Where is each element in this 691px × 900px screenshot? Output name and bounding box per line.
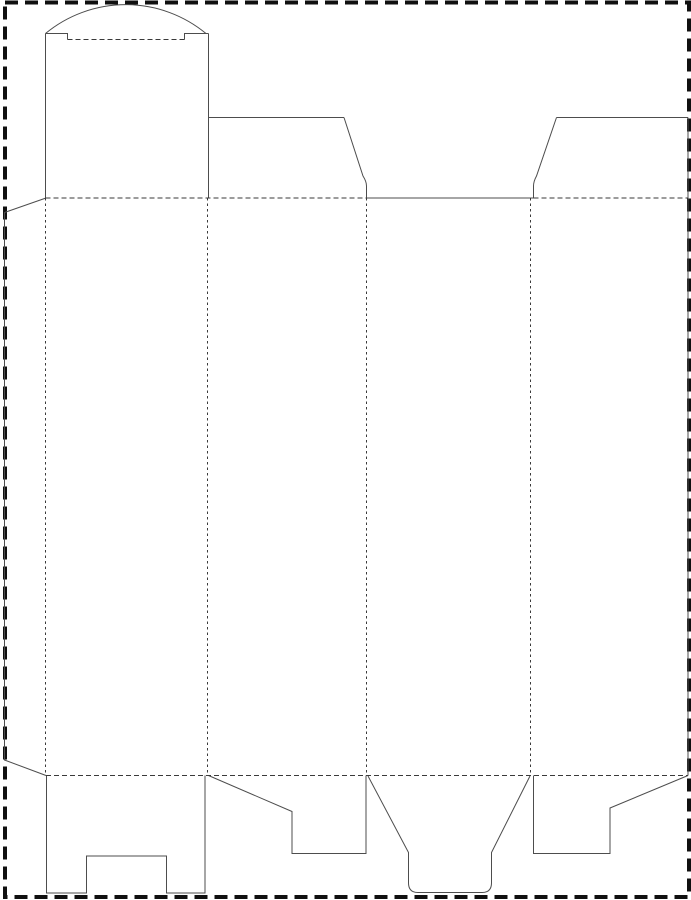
tuck-shoulder-right: [185, 34, 209, 40]
tuck-shoulder-left: [46, 34, 68, 40]
dust-flap-left-slant: [344, 118, 367, 199]
tuck-lid-arc: [46, 5, 207, 34]
box-dieline-diagram: [0, 0, 691, 900]
dust-flap-right-slant: [534, 118, 557, 199]
bottom-flap-2-outline: [209, 776, 367, 854]
page-border: [5, 3, 689, 898]
bottom-flap-4-outline: [534, 776, 689, 854]
bottom-flap-3-outline: [368, 776, 530, 893]
dieline-page: [0, 0, 691, 900]
glue-flap-outline: [5, 198, 47, 776]
bottom-flap-1-outline: [47, 776, 206, 894]
